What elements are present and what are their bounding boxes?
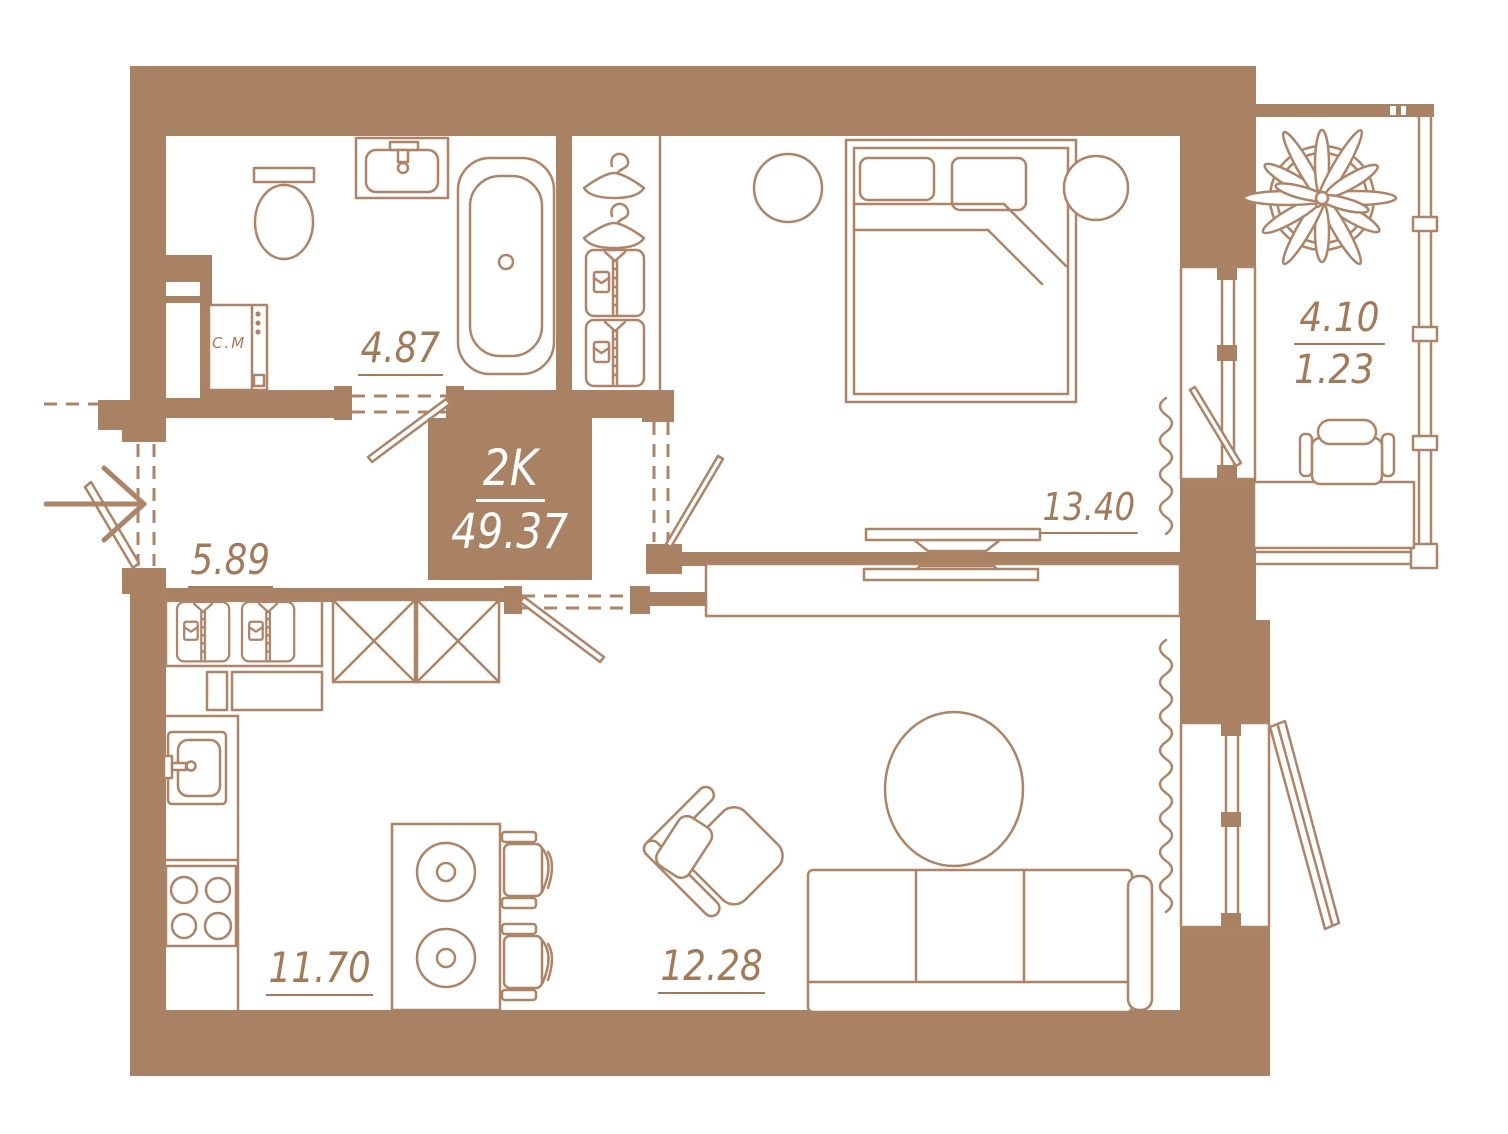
hanger-icon	[584, 154, 644, 198]
stove	[166, 866, 236, 946]
label-bathroom-area: 4.87	[358, 326, 443, 376]
tv-console	[706, 564, 1180, 616]
tv-bedroom	[866, 529, 1040, 551]
bedroom-door-leaf	[666, 456, 723, 547]
dining-chair	[502, 924, 552, 1000]
hanger-icon	[584, 204, 644, 248]
label-living-room-area: 12.28	[658, 944, 765, 994]
label-balcony-area: 4.10 1.23	[1294, 296, 1371, 392]
bathroom-sink	[356, 138, 448, 198]
unit-total-area: 49.37	[452, 508, 569, 556]
washing-machine-label: С.М	[212, 334, 246, 352]
desk-chair	[1300, 420, 1394, 484]
entrance-arrow-icon	[46, 468, 144, 540]
closet-crossed	[333, 600, 415, 682]
bedside-table-left	[754, 154, 822, 222]
double-bed	[846, 140, 1076, 402]
plant	[1244, 127, 1396, 267]
kitchen-sink	[164, 732, 226, 804]
hall-wardrobe	[166, 600, 322, 710]
folded-shirt-icon	[586, 320, 644, 386]
closet-crossed	[417, 600, 499, 682]
balcony-desk	[1254, 482, 1414, 548]
curtain-living-room	[1160, 640, 1172, 912]
living-room-window	[1181, 721, 1339, 929]
unit-info-badge: 2K 49.37	[428, 418, 592, 580]
folded-shirt-icon	[242, 602, 294, 661]
curtain-bedroom	[1160, 398, 1172, 534]
dining-chair	[502, 832, 552, 908]
bedside-table-right	[1064, 156, 1128, 220]
label-kitchen-area: 11.70	[266, 946, 373, 996]
bathtub	[458, 158, 554, 374]
sofa	[808, 870, 1152, 1012]
balcony-door-window	[1181, 267, 1255, 479]
folded-shirt-icon	[177, 602, 229, 661]
armchair	[640, 778, 789, 927]
label-hallway-area: 5.89	[188, 538, 273, 588]
folded-shirt-icon	[586, 250, 644, 316]
dining-table	[392, 824, 500, 1010]
toilet	[254, 168, 314, 259]
label-bedroom-area: 13.40	[1040, 488, 1138, 534]
unit-type: 2K	[476, 443, 545, 502]
round-rug	[885, 712, 1023, 866]
floor-plan: 4.87 5.89 11.70 12.28 13.40 2K 49.37 4.1…	[0, 0, 1508, 1134]
wardrobe-closet	[584, 136, 660, 390]
